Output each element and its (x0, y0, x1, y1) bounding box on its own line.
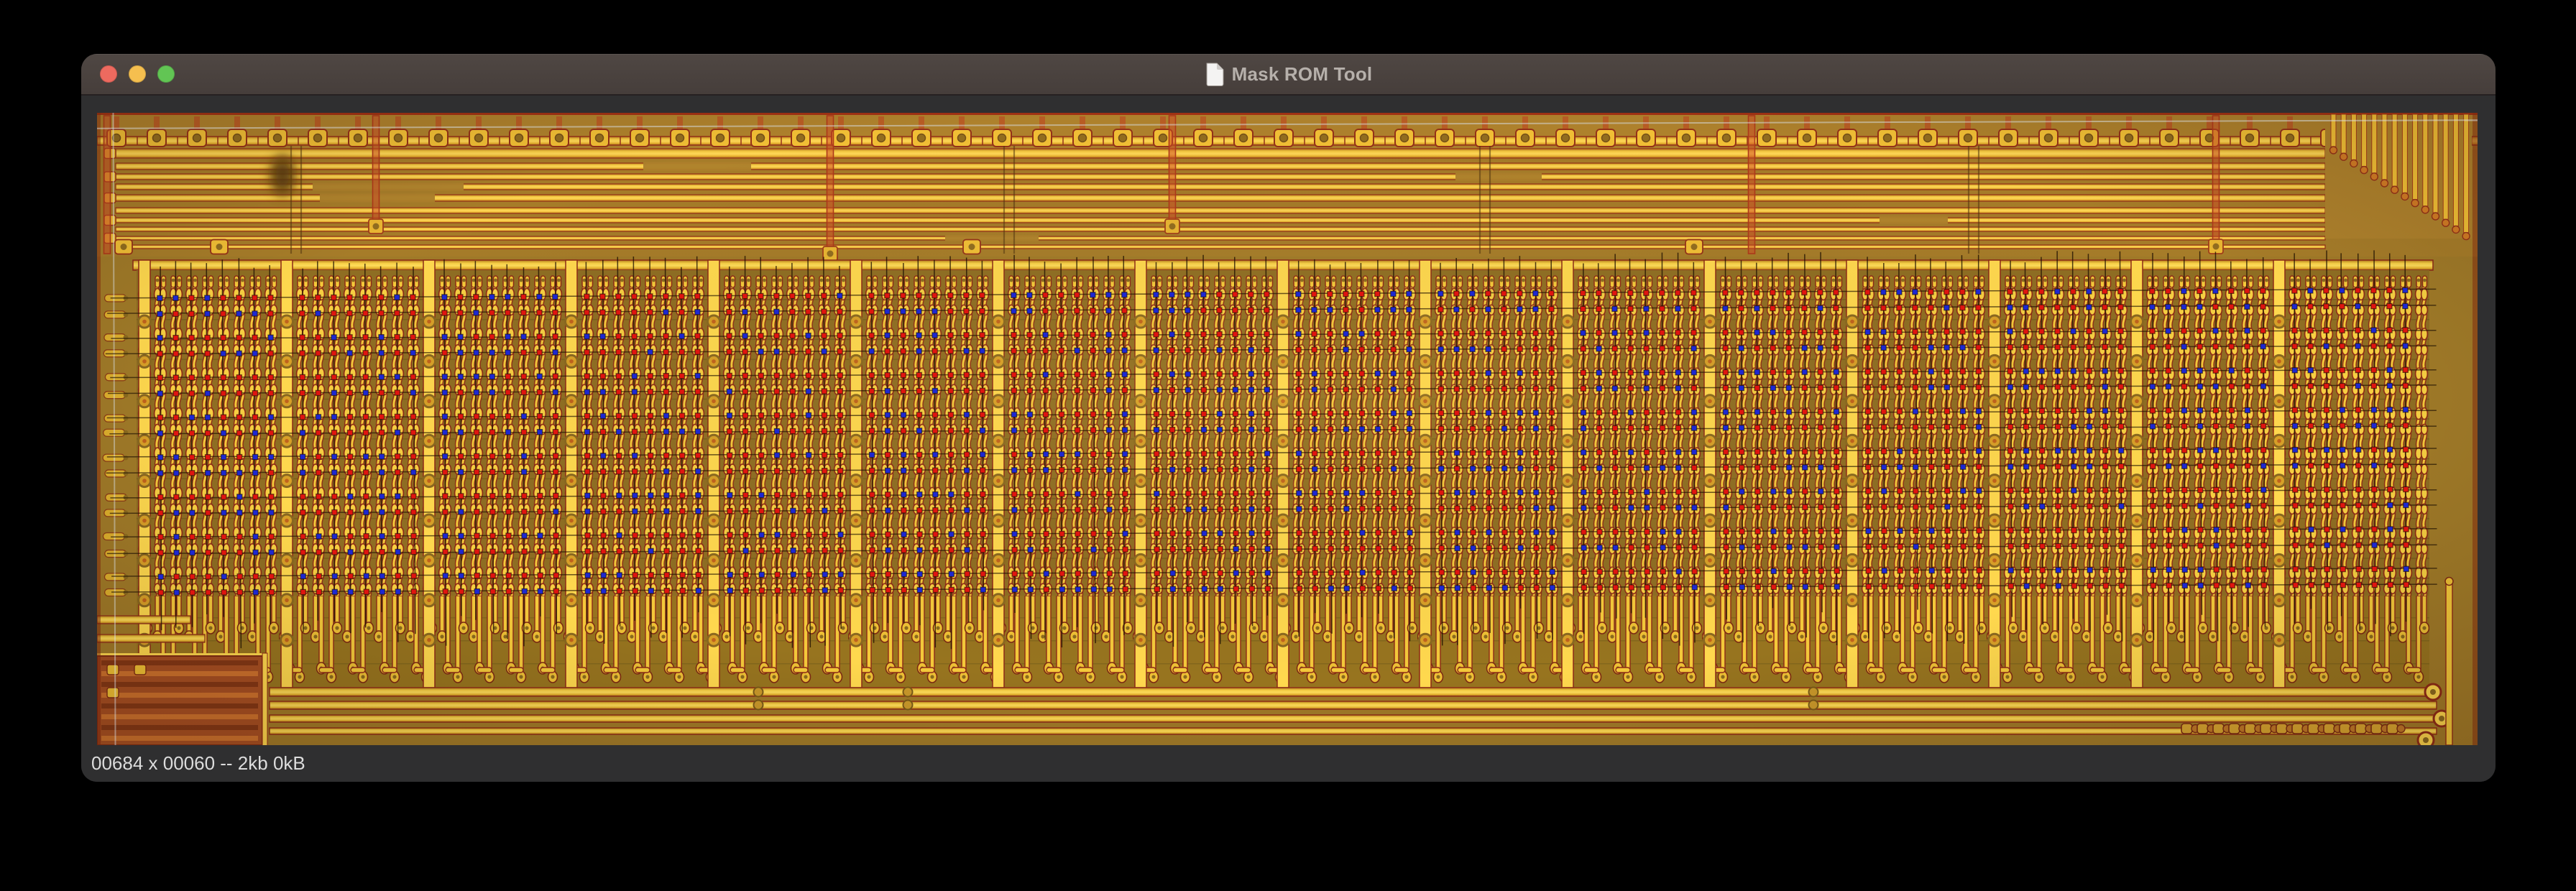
status-text: 00684 x 00060 -- 2kb 0kB (81, 752, 305, 775)
document-icon (1205, 62, 1225, 86)
app-window: Mask ROM Tool (81, 54, 2495, 782)
rom-die-image[interactable] (97, 113, 2478, 745)
status-bar: 00684 x 00060 -- 2kb 0kB (81, 745, 2495, 782)
window-title-group: Mask ROM Tool (1205, 62, 1373, 86)
traffic-lights (100, 65, 175, 83)
window-titlebar[interactable]: Mask ROM Tool (81, 54, 2495, 96)
window-title: Mask ROM Tool (1232, 63, 1373, 86)
desktop-background: Mask ROM Tool (0, 0, 2576, 891)
window-content (81, 96, 2495, 745)
close-button[interactable] (100, 65, 117, 83)
minimize-button[interactable] (129, 65, 146, 83)
zoom-button[interactable] (157, 65, 175, 83)
